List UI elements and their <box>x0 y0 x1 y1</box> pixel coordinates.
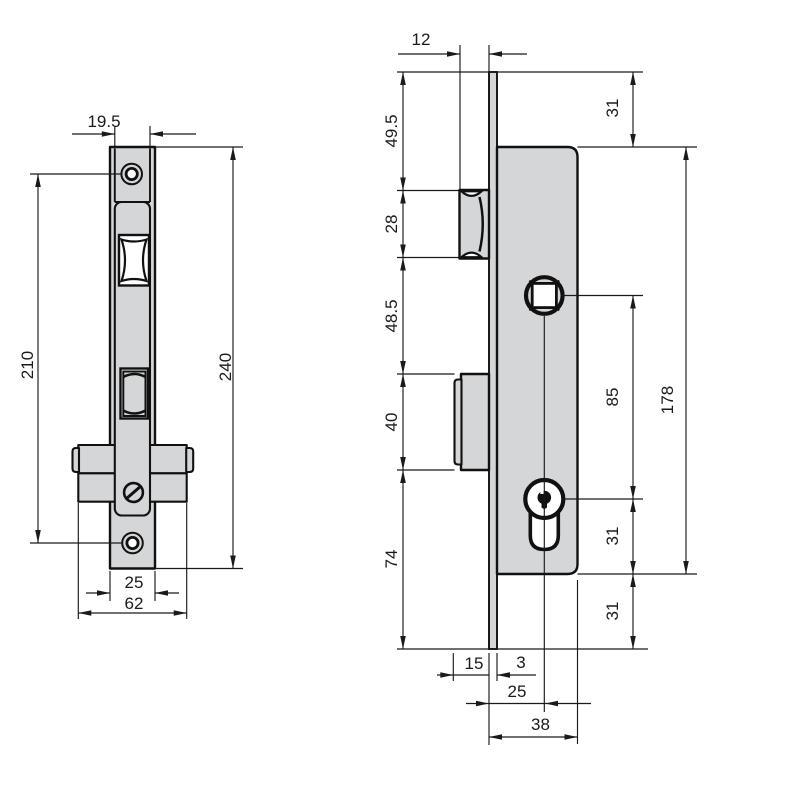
dim-label-backset: 25 <box>508 682 527 701</box>
side-view: 12 49.5 28 48.5 40 74 31 178 85 <box>382 30 697 745</box>
dim-label-latch-protrusion: 12 <box>412 30 431 49</box>
dim-label-case-height: 178 <box>658 386 677 414</box>
dim-label-spindle-to-cylinder: 85 <box>603 388 622 407</box>
housing-end-cap-right <box>186 448 193 472</box>
dim-label-plate-to-case: 31 <box>603 99 622 118</box>
technical-drawing-page: 19.5 210 240 25 62 <box>0 0 800 800</box>
dim-label-case-to-plate-bottom: 31 <box>603 602 622 621</box>
deadbolt-side <box>455 374 490 470</box>
dim-right-stack: 31 178 85 31 31 <box>563 72 697 649</box>
dim-label-deadbolt-height: 40 <box>382 413 401 432</box>
dim-label-deadbolt-to-bottom: 74 <box>382 550 401 569</box>
dim-case-width: 19.5 <box>72 112 196 146</box>
front-view: 19.5 210 240 25 62 <box>18 112 243 619</box>
dim-label-deadbolt-throw: 15 <box>465 654 484 673</box>
dim-bottom-stack: 15 3 25 38 <box>437 580 591 745</box>
dim-label-latch-to-deadbolt: 48.5 <box>382 299 401 332</box>
dim-label-case-width: 19.5 <box>87 112 120 131</box>
dim-label-total-height: 240 <box>216 353 235 381</box>
dim-label-case-depth: 38 <box>531 715 550 734</box>
dim-label-faceplate-width: 25 <box>125 573 144 592</box>
spindle-hole <box>526 277 563 314</box>
lock-technical-drawing: 19.5 210 240 25 62 <box>0 0 800 800</box>
cylinder-fixing-screw <box>124 483 143 502</box>
dim-label-screw-spacing: 210 <box>18 351 37 379</box>
dim-label-cylinder-to-case-bottom: 31 <box>603 527 622 546</box>
latch-bolt-face <box>122 240 147 282</box>
dim-total-height: 240 <box>155 147 243 569</box>
latch-bolt-side <box>460 190 490 259</box>
dim-label-top-to-latch: 49.5 <box>382 114 401 147</box>
dim-label-housing-width: 62 <box>125 594 144 613</box>
housing-end-cap-left <box>73 448 80 472</box>
deadbolt-face <box>123 372 145 417</box>
dim-label-faceplate-thickness: 3 <box>516 653 525 672</box>
dim-label-latch-height: 28 <box>382 215 401 234</box>
